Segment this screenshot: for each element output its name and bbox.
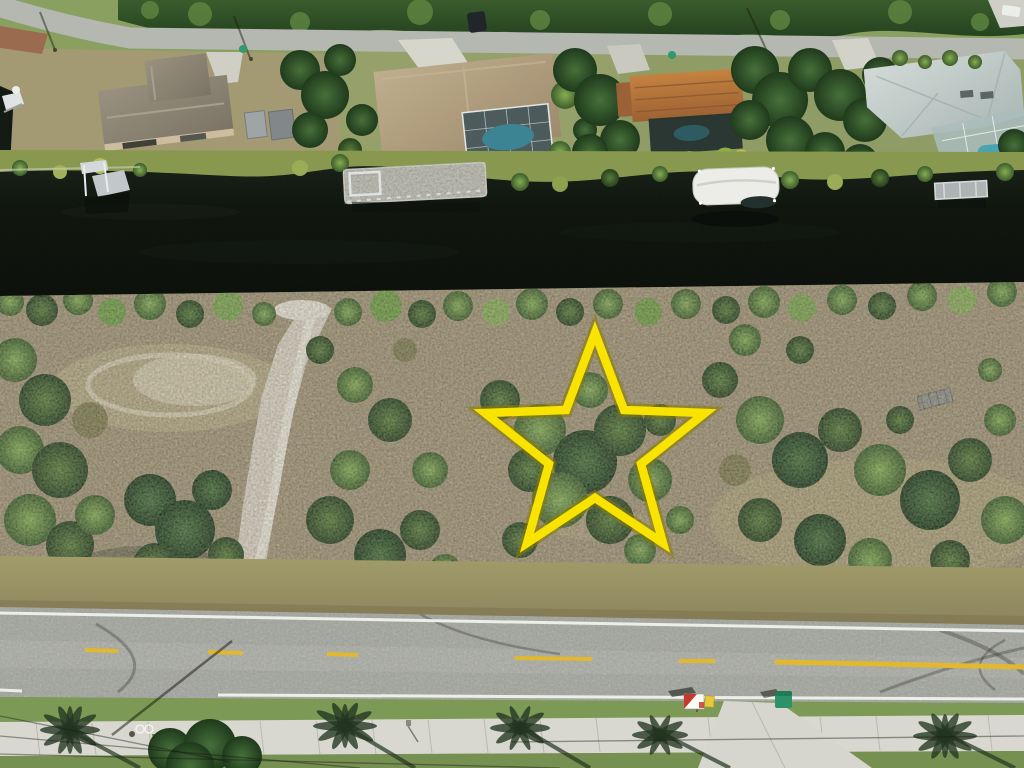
aerial-photo-canvas (0, 0, 1024, 768)
dock-right (935, 181, 988, 200)
curbside-trash-bin-2 (668, 51, 676, 59)
scene (0, 0, 1024, 768)
curbside-trash-bin-1 (239, 45, 247, 53)
dock-gravel-reflection (352, 202, 480, 212)
sign-yellow-rider (705, 696, 715, 708)
bottom-street-block (0, 556, 1024, 768)
canal (0, 150, 1024, 307)
covered-boat (692, 166, 779, 210)
covered-boat-reflection (691, 211, 779, 227)
trash-bin-lid (775, 691, 792, 696)
dark-suv (467, 11, 488, 33)
dock-gravel (343, 162, 487, 203)
